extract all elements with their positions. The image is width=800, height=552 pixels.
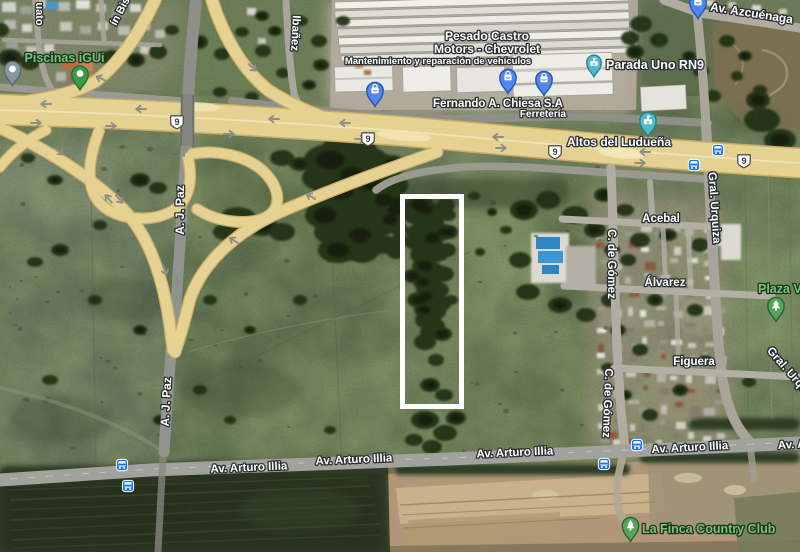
svg-text:Parada Uno RN9: Parada Uno RN9: [606, 58, 704, 72]
svg-text:A. J. Paz: A. J. Paz: [158, 377, 175, 427]
svg-text:Ferretería: Ferretería: [520, 109, 567, 120]
svg-text:Plaza V: Plaza V: [758, 282, 800, 296]
svg-text:9: 9: [741, 156, 746, 166]
svg-text:Av. Arturo Il: Av. Arturo Il: [778, 437, 800, 452]
svg-text:A. J. Paz: A. J. Paz: [173, 185, 187, 234]
svg-text:Pesado Castro: Pesado Castro: [445, 29, 529, 43]
svg-text:Figuera: Figuera: [673, 356, 715, 368]
svg-text:Mantenimiento y reparación de: Mantenimiento y reparación de vehículos: [345, 56, 531, 67]
svg-text:C. de Gómez: C. de Gómez: [600, 368, 614, 438]
svg-text:Altos del Ludueña: Altos del Ludueña: [567, 135, 671, 149]
svg-text:Ibañez: Ibañez: [288, 15, 302, 52]
svg-text:Álvarez: Álvarez: [645, 276, 686, 289]
svg-text:La Finca Country Club: La Finca Country Club: [642, 522, 776, 536]
svg-text:uato: uato: [33, 2, 45, 26]
svg-text:Piscinas iGUi: Piscinas iGUi: [25, 51, 105, 65]
svg-text:C. de Gómez: C. de Gómez: [605, 229, 617, 299]
svg-text:Motors - Chevrolet: Motors - Chevrolet: [434, 42, 540, 56]
svg-text:9: 9: [365, 134, 370, 144]
svg-text:Acebal: Acebal: [642, 213, 680, 225]
svg-text:9: 9: [552, 147, 557, 157]
svg-text:9: 9: [174, 117, 179, 127]
